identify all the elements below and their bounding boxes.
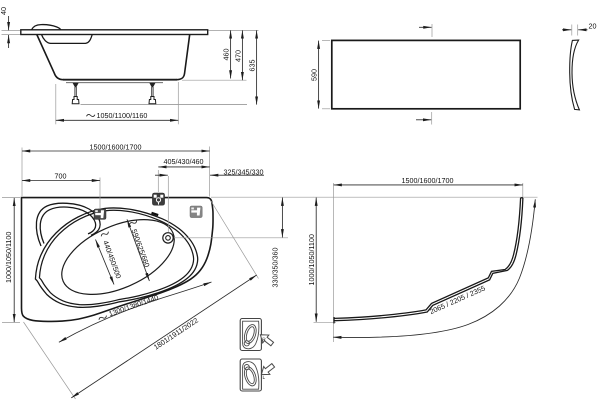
svg-text:325/345/330: 325/345/330 (224, 167, 264, 176)
svg-text:1500/1600/1700: 1500/1600/1700 (90, 142, 142, 151)
svg-text:1000/1050/1100: 1000/1050/1100 (307, 234, 316, 285)
svg-text:470: 470 (233, 50, 242, 62)
svg-text:R: R (262, 337, 266, 343)
svg-text:330/350/360: 330/350/360 (270, 248, 279, 288)
svg-text:405/430/460: 405/430/460 (164, 157, 204, 166)
svg-text:1000/1050/1100: 1000/1050/1100 (4, 232, 13, 283)
svg-text:40: 40 (0, 7, 8, 15)
svg-text:635: 635 (248, 60, 257, 72)
svg-text:590: 590 (309, 69, 318, 81)
svg-text:460: 460 (222, 49, 231, 61)
svg-text:20: 20 (589, 21, 597, 30)
svg-text:L: L (263, 375, 266, 381)
svg-text:700: 700 (55, 172, 67, 181)
svg-text:1500/1600/1700: 1500/1600/1700 (402, 176, 454, 185)
svg-text:1050/1100/1160: 1050/1100/1160 (97, 111, 148, 120)
